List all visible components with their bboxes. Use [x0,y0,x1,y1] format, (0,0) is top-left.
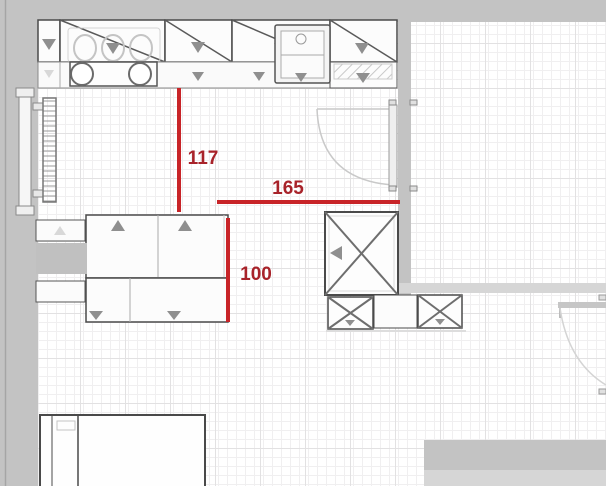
window-cap-top [16,88,34,97]
plain-base-cabinet[interactable] [374,295,417,328]
radiator-bracket [33,190,43,197]
door-leaf [558,302,606,308]
window-cap-bottom [16,206,34,215]
door-frame-bracket [599,389,606,394]
swing-door-right[interactable] [558,295,606,394]
dimension-label: 100 [240,264,272,285]
dimension-label: 117 [188,148,219,169]
island-row-up[interactable] [86,215,228,278]
burner-icon [71,63,93,85]
floor-plan: 117 165 100 [0,0,606,486]
dimension-100[interactable]: 100 [228,218,272,322]
door-leaf [389,105,397,187]
table[interactable] [40,415,205,486]
table-outline [40,415,205,486]
door-frame-bracket [599,295,606,300]
kitchen-island[interactable] [36,215,228,322]
window[interactable] [16,88,34,215]
window-body [19,97,31,206]
door-swing-arc [560,308,606,385]
door-frame-bracket [389,186,396,191]
floor-plan-canvas: 117 165 100 [0,0,606,486]
dimension-label: 165 [272,178,304,199]
inner-horizontal-wall [398,283,606,293]
door-frame-bracket [389,100,396,105]
inner-vertical-wall [398,22,411,295]
radiator-bracket [33,103,43,110]
wall-cabinet-row[interactable] [38,20,397,62]
burner-icon [129,63,151,85]
door-frame-bracket [410,186,417,191]
island-row-down[interactable] [86,278,228,322]
door-frame-bracket [410,100,417,105]
dimension-117[interactable]: 117 [179,88,218,212]
top-wall [0,0,606,22]
lower-x-cabinets[interactable] [326,295,466,331]
door-swing-arc [317,109,393,185]
tall-corner-cabinet[interactable] [325,212,398,295]
bottom-right-wall-block-light-strip [424,470,606,486]
sink-unit[interactable] [275,25,330,83]
island-end-unit-bottom[interactable] [36,281,85,302]
appliance-gray-block[interactable] [36,243,87,274]
radiator-body [43,98,56,202]
